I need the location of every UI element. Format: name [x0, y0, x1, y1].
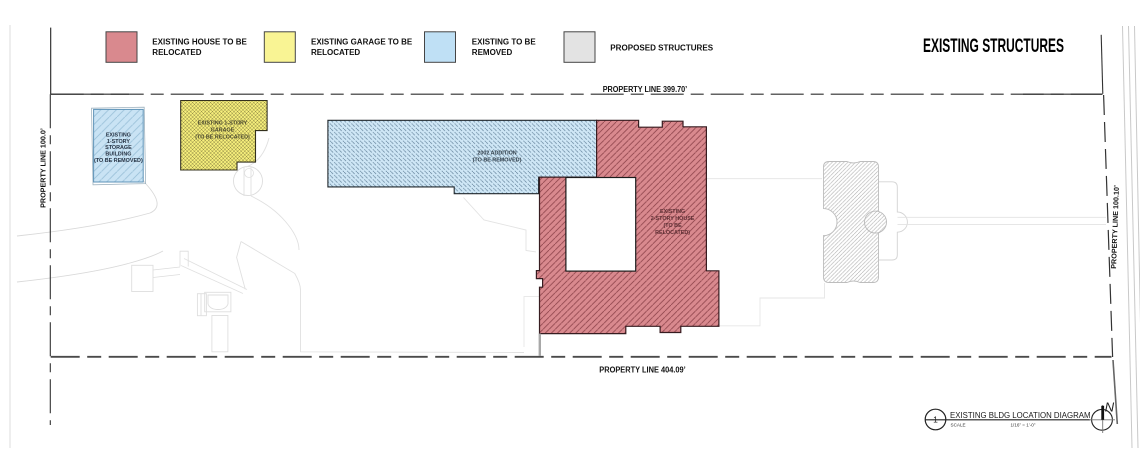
svg-text:2-STORY HOUSE: 2-STORY HOUSE	[651, 216, 695, 222]
svg-text:EXISTING TO BE: EXISTING TO BE	[472, 37, 537, 46]
svg-text:EXISTING STRUCTURES: EXISTING STRUCTURES	[923, 35, 1064, 57]
svg-text:1/16” = 1’-0”: 1/16” = 1’-0”	[1011, 422, 1036, 427]
svg-text:(TO BE REMOVED): (TO BE REMOVED)	[473, 157, 522, 163]
svg-text:EXISTING BLDG LOCATION DIAGRAM: EXISTING BLDG LOCATION DIAGRAM	[950, 410, 1091, 420]
svg-text:SCALE: SCALE	[951, 422, 966, 427]
svg-text:PROPERTY LINE 399.70’: PROPERTY LINE 399.70’	[603, 85, 688, 94]
svg-text:PROPOSED STRUCTURES: PROPOSED STRUCTURES	[610, 44, 713, 53]
svg-text:STORAGE: STORAGE	[105, 145, 132, 151]
svg-text:(TO BE REMOVED): (TO BE REMOVED)	[94, 158, 143, 164]
svg-text:EXISTING: EXISTING	[106, 133, 131, 139]
svg-text:BUILDING: BUILDING	[105, 152, 131, 158]
svg-text:EXISTING HOUSE TO BE: EXISTING HOUSE TO BE	[152, 37, 247, 46]
svg-text:PROPERTY LINE 404.09’: PROPERTY LINE 404.09’	[599, 366, 685, 375]
svg-text:PROPERTY LINE 100.0’: PROPERTY LINE 100.0’	[39, 128, 48, 208]
svg-text:1-STORY: 1-STORY	[107, 139, 130, 145]
svg-text:EXISTING GARAGE TO BE: EXISTING GARAGE TO BE	[311, 37, 413, 46]
svg-text:EXISTING 1-STORY: EXISTING 1-STORY	[198, 120, 248, 126]
svg-text:RELOCATED: RELOCATED	[152, 48, 201, 57]
svg-text:(TO BE RELOCATED): (TO BE RELOCATED)	[195, 134, 250, 140]
svg-text:GARAGE: GARAGE	[211, 127, 235, 133]
svg-text:RELOCATED): RELOCATED)	[655, 230, 690, 236]
svg-text:RELOCATED: RELOCATED	[311, 48, 360, 57]
svg-text:2002 ADDITION: 2002 ADDITION	[477, 151, 516, 157]
svg-text:N: N	[1105, 399, 1115, 414]
svg-text:EXISTING: EXISTING	[660, 209, 685, 215]
svg-text:REMOVED: REMOVED	[472, 48, 513, 57]
svg-text:(TO BE: (TO BE	[664, 223, 683, 229]
